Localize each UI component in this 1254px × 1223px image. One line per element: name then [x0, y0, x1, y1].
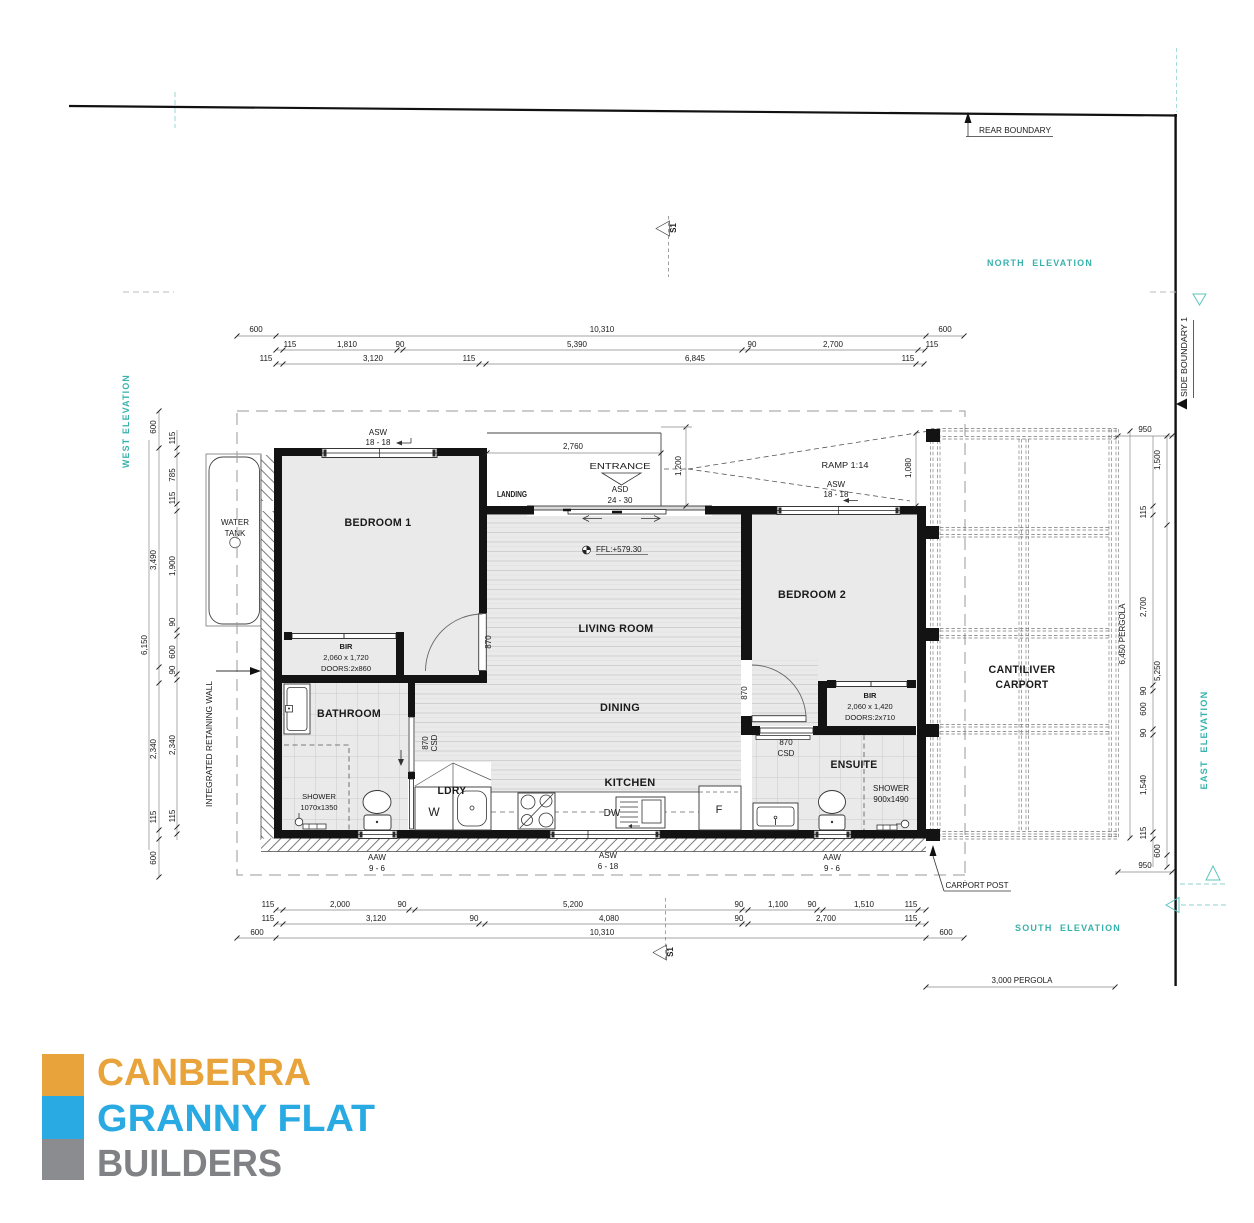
svg-text:3,000 PERGOLA: 3,000 PERGOLA	[992, 976, 1054, 985]
svg-text:6,150: 6,150	[140, 634, 149, 655]
svg-text:REAR BOUNDARY: REAR BOUNDARY	[979, 126, 1052, 135]
svg-text:600: 600	[249, 325, 263, 334]
svg-text:870: 870	[484, 635, 493, 649]
svg-text:BATHROOM: BATHROOM	[317, 708, 381, 720]
svg-text:2,340: 2,340	[149, 738, 158, 759]
svg-text:DOORS:2x710: DOORS:2x710	[845, 713, 895, 722]
svg-text:F: F	[716, 804, 723, 816]
svg-text:3,120: 3,120	[366, 914, 387, 923]
svg-text:SIDE BOUNDARY 1: SIDE BOUNDARY 1	[1180, 316, 1189, 397]
svg-text:600: 600	[149, 420, 158, 434]
svg-text:10,310: 10,310	[590, 928, 615, 937]
svg-text:SOUTH ELEVATION: SOUTH ELEVATION	[1015, 923, 1121, 934]
svg-text:ASD: ASD	[612, 485, 629, 494]
svg-text:EAST ELEVATION: EAST ELEVATION	[1199, 691, 1210, 790]
svg-text:2,700: 2,700	[816, 914, 837, 923]
svg-text:6,845: 6,845	[685, 354, 706, 363]
svg-text:FFL:+579.30: FFL:+579.30	[596, 545, 642, 554]
svg-text:2,060 x 1,420: 2,060 x 1,420	[847, 702, 892, 711]
svg-text:90: 90	[470, 914, 479, 923]
svg-text:BEDROOM 1: BEDROOM 1	[345, 517, 412, 529]
svg-text:BUILDERS: BUILDERS	[97, 1143, 282, 1185]
svg-text:1,900: 1,900	[168, 555, 177, 576]
svg-text:90: 90	[735, 914, 744, 923]
svg-text:600: 600	[939, 928, 953, 937]
svg-text:90: 90	[398, 900, 407, 909]
svg-text:90: 90	[1139, 728, 1148, 737]
svg-text:S1: S1	[666, 947, 675, 957]
svg-text:ENSUITE: ENSUITE	[831, 759, 878, 771]
svg-text:3,120: 3,120	[363, 354, 384, 363]
svg-text:870: 870	[740, 686, 749, 700]
svg-text:90: 90	[1139, 686, 1148, 695]
svg-text:600: 600	[149, 851, 158, 865]
svg-text:AAW: AAW	[368, 853, 386, 862]
svg-text:W: W	[428, 805, 440, 819]
svg-text:600: 600	[168, 645, 177, 659]
svg-text:NORTH ELEVATION: NORTH ELEVATION	[987, 258, 1093, 269]
svg-text:870: 870	[421, 736, 430, 750]
svg-text:950: 950	[1138, 425, 1152, 434]
svg-text:24 - 30: 24 - 30	[608, 496, 633, 505]
svg-text:9 - 6: 9 - 6	[369, 864, 386, 873]
svg-text:115: 115	[905, 914, 918, 923]
svg-text:WATER: WATER	[221, 518, 249, 527]
svg-text:ASW: ASW	[827, 480, 846, 489]
svg-text:9 - 6: 9 - 6	[824, 864, 841, 873]
svg-text:600: 600	[938, 325, 952, 334]
svg-text:5,250: 5,250	[1153, 660, 1162, 681]
svg-text:3,490: 3,490	[149, 549, 158, 570]
svg-text:950: 950	[1138, 861, 1152, 870]
svg-text:ASW: ASW	[369, 428, 388, 437]
svg-text:2,340: 2,340	[168, 734, 177, 755]
svg-text:115: 115	[262, 914, 275, 923]
svg-text:TANK: TANK	[225, 529, 246, 538]
svg-text:600: 600	[250, 928, 264, 937]
svg-text:RAMP 1:14: RAMP 1:14	[822, 461, 870, 470]
svg-text:1,100: 1,100	[768, 900, 789, 909]
svg-text:2,060 x 1,720: 2,060 x 1,720	[323, 653, 368, 662]
svg-text:115: 115	[149, 810, 158, 823]
svg-text:LDRY: LDRY	[438, 785, 467, 797]
svg-text:115: 115	[168, 491, 177, 504]
svg-text:90: 90	[396, 340, 405, 349]
svg-text:600: 600	[1153, 844, 1162, 858]
svg-text:CANBERRA: CANBERRA	[97, 1052, 311, 1094]
svg-text:1,500: 1,500	[1153, 449, 1162, 470]
svg-text:18 - 18: 18 - 18	[824, 490, 849, 499]
svg-text:CSD: CSD	[778, 749, 795, 758]
svg-text:2,700: 2,700	[1139, 596, 1148, 617]
svg-text:GRANNY FLAT: GRANNY FLAT	[97, 1098, 375, 1140]
svg-text:LANDING: LANDING	[497, 490, 527, 499]
svg-text:115: 115	[284, 340, 297, 349]
svg-text:BIR: BIR	[864, 691, 878, 700]
svg-text:870: 870	[779, 738, 793, 747]
svg-text:1070x1350: 1070x1350	[300, 803, 337, 812]
svg-text:115: 115	[926, 340, 939, 349]
svg-text:115: 115	[168, 431, 177, 444]
svg-text:1,510: 1,510	[854, 900, 875, 909]
svg-text:BEDROOM 2: BEDROOM 2	[778, 589, 846, 601]
svg-text:WEST ELEVATION: WEST ELEVATION	[121, 374, 132, 468]
svg-text:115: 115	[260, 354, 273, 363]
svg-text:1,540: 1,540	[1139, 774, 1148, 795]
svg-text:6,450 PERGOLA: 6,450 PERGOLA	[1118, 603, 1127, 665]
svg-text:S1: S1	[669, 223, 678, 233]
svg-text:90: 90	[735, 900, 744, 909]
svg-text:AAW: AAW	[823, 853, 841, 862]
svg-text:90: 90	[808, 900, 817, 909]
svg-text:5,200: 5,200	[563, 900, 584, 909]
svg-text:CANTILIVER: CANTILIVER	[989, 664, 1056, 676]
svg-text:SHOWER: SHOWER	[873, 784, 909, 793]
svg-text:6 - 18: 6 - 18	[598, 862, 619, 871]
svg-text:ENTRANCE: ENTRANCE	[590, 462, 651, 471]
svg-text:1,200: 1,200	[674, 455, 683, 476]
svg-text:1,810: 1,810	[337, 340, 358, 349]
svg-text:18 - 18: 18 - 18	[366, 438, 391, 447]
svg-text:BIR: BIR	[340, 642, 354, 651]
svg-text:115: 115	[1139, 505, 1148, 518]
svg-text:KITCHEN: KITCHEN	[605, 777, 656, 789]
svg-text:1,080: 1,080	[904, 457, 913, 478]
svg-text:2,700: 2,700	[823, 340, 844, 349]
svg-text:115: 115	[905, 900, 918, 909]
svg-text:2,760: 2,760	[563, 442, 584, 451]
svg-text:INTEGRATED RETAINING WALL: INTEGRATED RETAINING WALL	[205, 680, 214, 807]
svg-text:CARPORT: CARPORT	[996, 679, 1049, 691]
svg-text:ASW: ASW	[599, 851, 618, 860]
svg-text:2,000: 2,000	[330, 900, 351, 909]
svg-text:115: 115	[1139, 826, 1148, 839]
svg-text:10,310: 10,310	[590, 325, 615, 334]
svg-text:115: 115	[463, 354, 476, 363]
svg-text:DINING: DINING	[600, 702, 640, 714]
svg-text:900x1490: 900x1490	[873, 795, 909, 804]
svg-text:CARPORT POST: CARPORT POST	[946, 881, 1009, 890]
svg-text:90: 90	[168, 617, 177, 626]
svg-text:SHOWER: SHOWER	[302, 792, 336, 801]
svg-text:115: 115	[262, 900, 275, 909]
svg-text:5,390: 5,390	[567, 340, 588, 349]
svg-text:CSD: CSD	[430, 734, 439, 751]
svg-text:DOORS:2x860: DOORS:2x860	[321, 664, 371, 673]
svg-text:90: 90	[748, 340, 757, 349]
svg-text:4,080: 4,080	[599, 914, 620, 923]
svg-text:115: 115	[168, 809, 177, 822]
svg-text:DW: DW	[604, 808, 621, 819]
svg-text:LIVING ROOM: LIVING ROOM	[579, 623, 654, 635]
svg-text:600: 600	[1139, 702, 1148, 716]
svg-text:785: 785	[168, 468, 177, 482]
svg-text:115: 115	[902, 354, 915, 363]
svg-text:90: 90	[168, 665, 177, 674]
